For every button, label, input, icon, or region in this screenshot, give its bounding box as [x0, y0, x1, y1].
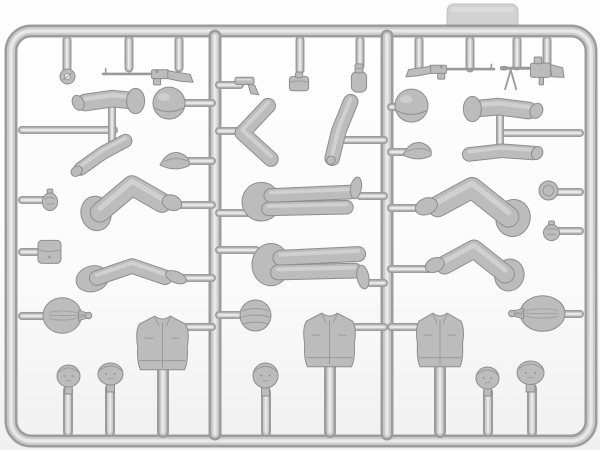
helmet-right-column	[395, 89, 428, 122]
mess-tin-lid	[539, 181, 558, 200]
sling-ring	[60, 69, 75, 84]
helmet-left-column	[153, 87, 185, 119]
pouch-left	[38, 240, 61, 263]
sprue-scene	[0, 0, 600, 450]
wrapped-helmet	[240, 300, 271, 331]
torso-left-column	[137, 316, 189, 370]
torso-right-column	[417, 313, 464, 367]
torso-middle-column	[304, 313, 356, 367]
sprue-photo	[0, 0, 600, 450]
